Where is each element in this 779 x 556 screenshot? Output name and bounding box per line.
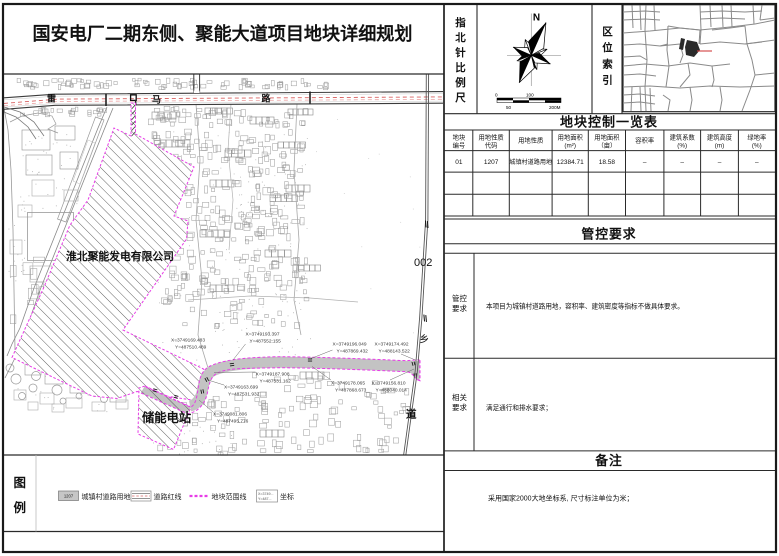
svg-text:X=3749178.065: X=3749178.065 xyxy=(331,381,365,387)
svg-text:采用国家2000大地坐标系, 尺寸标注单位为米；: 采用国家2000大地坐标系, 尺寸标注单位为米； xyxy=(488,494,633,503)
svg-text:X=3749156.810: X=3749156.810 xyxy=(372,381,406,387)
svg-text:200M: 200M xyxy=(549,105,561,110)
svg-text:用地面积: 用地面积 xyxy=(558,133,584,142)
svg-text:位: 位 xyxy=(602,41,613,54)
svg-text:X=3749196.049: X=3749196.049 xyxy=(333,342,367,348)
svg-text:Y=487...: Y=487... xyxy=(258,497,272,501)
svg-text:–: – xyxy=(755,159,759,166)
svg-text:12384.71: 12384.71 xyxy=(557,159,584,166)
svg-text:地块控制一览表: 地块控制一览表 xyxy=(560,115,658,130)
svg-text:马: 马 xyxy=(152,95,161,105)
svg-text:18.58: 18.58 xyxy=(599,159,616,166)
svg-text:代码: 代码 xyxy=(485,141,498,150)
svg-text:针: 针 xyxy=(454,46,466,59)
svg-text:(m): (m) xyxy=(715,143,724,150)
svg-text:比: 比 xyxy=(455,61,466,74)
svg-text:城镇村道路用地: 城镇村道路用地 xyxy=(82,492,131,501)
svg-text:X=3749193.397: X=3749193.397 xyxy=(246,332,280,338)
svg-text:淮北聚能发电有限公司: 淮北聚能发电有限公司 xyxy=(66,249,174,263)
svg-text:用地面积: 用地面积 xyxy=(594,133,620,142)
svg-text:北: 北 xyxy=(455,31,466,44)
svg-text:X=3749...: X=3749... xyxy=(258,492,274,496)
svg-text:Y=487510.489: Y=487510.489 xyxy=(175,345,207,351)
svg-text:坐标: 坐标 xyxy=(280,492,294,501)
svg-text:1207: 1207 xyxy=(64,494,74,499)
svg-text:100: 100 xyxy=(526,93,534,98)
svg-text:引: 引 xyxy=(602,74,613,87)
svg-text:0: 0 xyxy=(495,93,498,98)
svg-text:道: 道 xyxy=(406,408,417,421)
svg-text:绿地率: 绿地率 xyxy=(747,133,766,142)
svg-text:X=3749169.483: X=3749169.483 xyxy=(171,338,205,344)
svg-text:Y=487869.432: Y=487869.432 xyxy=(337,349,369,355)
svg-text:容积率: 容积率 xyxy=(635,136,654,145)
svg-text:管控: 管控 xyxy=(452,293,467,303)
svg-text:指: 指 xyxy=(455,16,466,29)
svg-text:相关: 相关 xyxy=(452,392,467,402)
svg-text:地块范围线: 地块范围线 xyxy=(212,492,247,501)
svg-text:路: 路 xyxy=(262,93,272,104)
svg-text:Y=487531.162: Y=487531.162 xyxy=(260,379,292,385)
svg-text:X=3749081.806: X=3749081.806 xyxy=(213,412,247,418)
svg-text:城镇村道路用地: 城镇村道路用地 xyxy=(509,158,552,166)
svg-text:Y=488143.522: Y=488143.522 xyxy=(379,349,411,355)
svg-text:–: – xyxy=(680,159,684,166)
svg-text:Y=487552.155: Y=487552.155 xyxy=(250,339,282,345)
svg-text:（亩）: （亩） xyxy=(597,141,616,150)
svg-text:乡: 乡 xyxy=(419,334,429,346)
svg-text:1207: 1207 xyxy=(484,159,499,166)
svg-text:本项目为城镇村道路用地，容积率、建筑密度等指标不做具体要求。: 本项目为城镇村道路用地，容积率、建筑密度等指标不做具体要求。 xyxy=(486,302,684,311)
svg-text:用地性质: 用地性质 xyxy=(518,136,543,145)
svg-text:图: 图 xyxy=(14,476,27,490)
svg-text:Y=487531.932: Y=487531.932 xyxy=(228,392,260,398)
svg-text:N: N xyxy=(533,13,540,24)
svg-text:区: 区 xyxy=(602,26,613,38)
svg-text:地块: 地块 xyxy=(453,133,466,142)
svg-text:(m²): (m²) xyxy=(564,143,576,150)
svg-text:满足通行和排水要求；: 满足通行和排水要求； xyxy=(486,403,552,412)
svg-text:例: 例 xyxy=(455,76,466,89)
svg-text:X=3749187.908: X=3749187.908 xyxy=(256,372,290,378)
svg-text:Y=488040.014: Y=488040.014 xyxy=(376,388,408,394)
svg-text:管控要求: 管控要求 xyxy=(581,227,636,242)
svg-text:Y=487495.776: Y=487495.776 xyxy=(217,419,249,425)
svg-text:道路红线: 道路红线 xyxy=(154,492,182,501)
svg-text:储能电站: 储能电站 xyxy=(141,410,192,425)
svg-text:备注: 备注 xyxy=(594,453,623,468)
svg-text:(%): (%) xyxy=(677,143,687,150)
svg-text:用地性质: 用地性质 xyxy=(479,133,504,142)
svg-text:X=3749174.492: X=3749174.492 xyxy=(375,342,409,348)
svg-text:索: 索 xyxy=(602,57,613,70)
svg-text:002: 002 xyxy=(414,257,432,269)
svg-text:X=3749163.699: X=3749163.699 xyxy=(224,385,258,391)
svg-text:建筑高度: 建筑高度 xyxy=(707,133,733,142)
svg-text:50: 50 xyxy=(506,105,512,110)
svg-text:–: – xyxy=(643,159,647,166)
svg-text:国安电厂二期东侧、聚能大道项目地块详细规划: 国安电厂二期东侧、聚能大道项目地块详细规划 xyxy=(33,23,413,44)
svg-text:编号: 编号 xyxy=(453,141,466,150)
svg-text:01: 01 xyxy=(455,159,463,166)
svg-text:雷: 雷 xyxy=(47,93,56,104)
svg-text:要求: 要求 xyxy=(452,402,467,412)
svg-text:尺: 尺 xyxy=(455,92,466,104)
svg-text:要求: 要求 xyxy=(452,303,467,313)
svg-text:(%): (%) xyxy=(752,143,762,150)
svg-text:例: 例 xyxy=(14,500,27,515)
svg-text:建筑系数: 建筑系数 xyxy=(670,133,696,142)
svg-text:Y=487868.673: Y=487868.673 xyxy=(335,388,367,394)
svg-text:–: – xyxy=(718,159,722,166)
